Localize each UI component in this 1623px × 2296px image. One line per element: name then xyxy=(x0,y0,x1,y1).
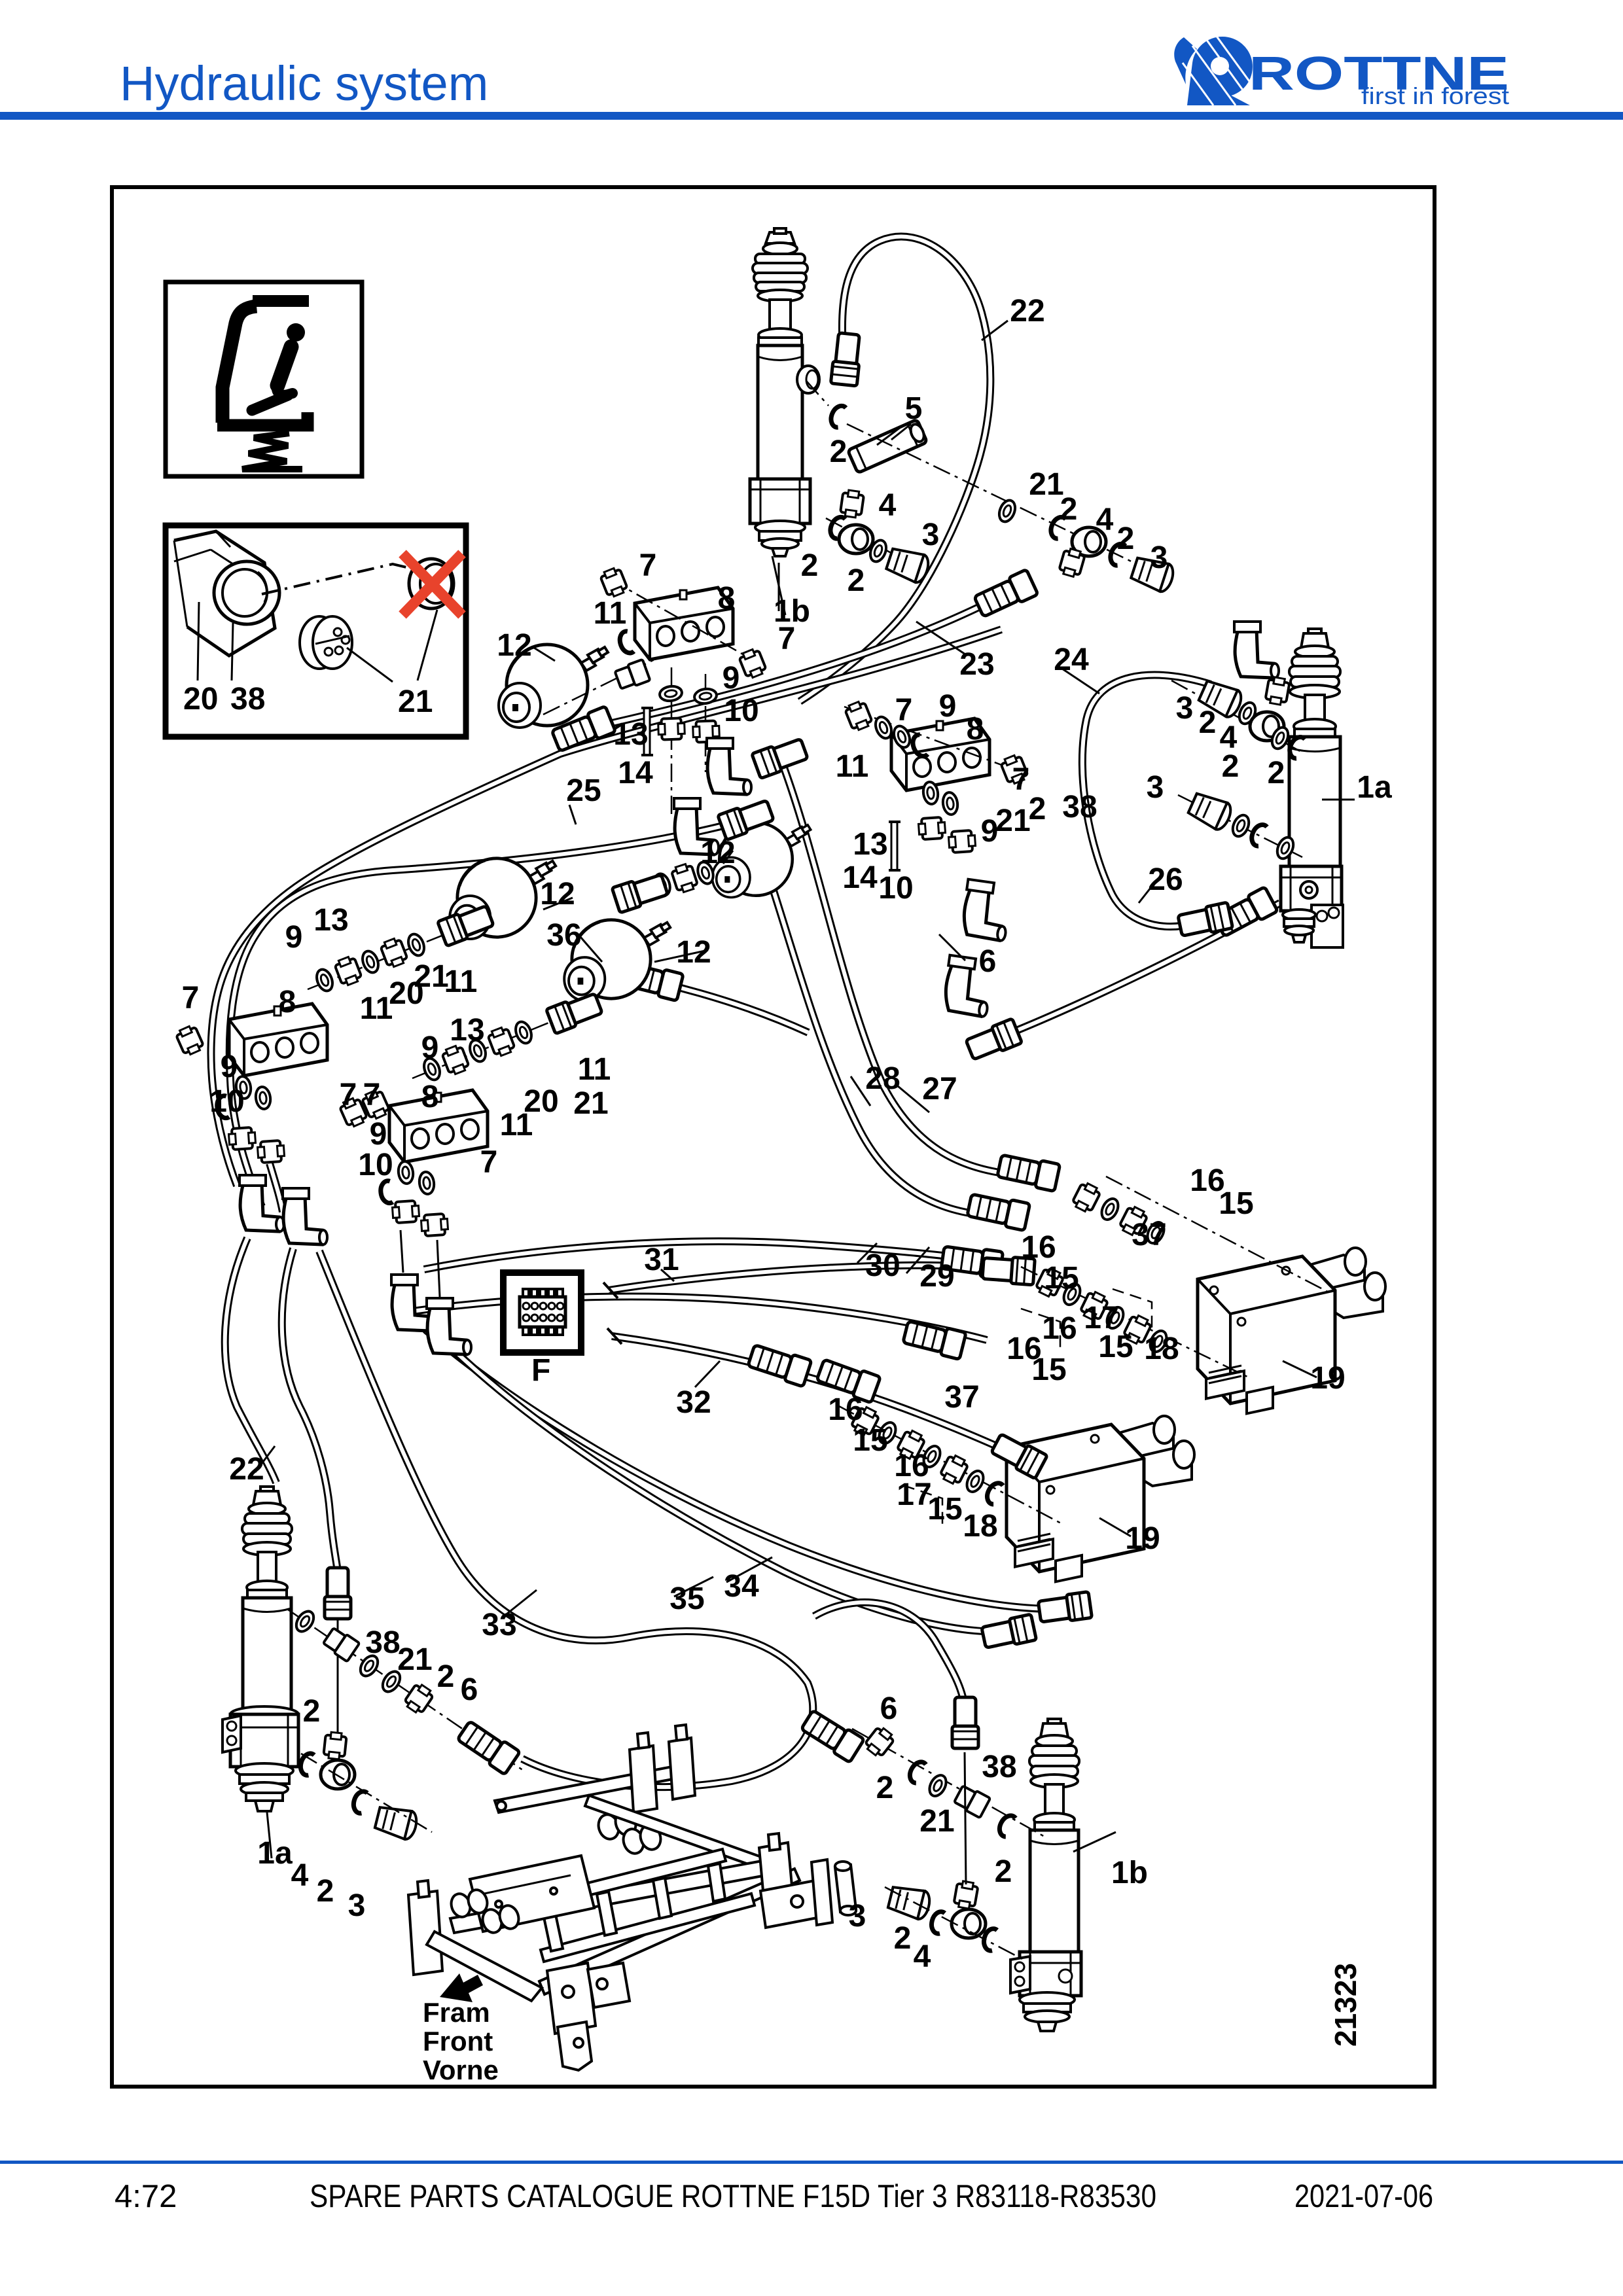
svg-text:23: 23 xyxy=(959,647,994,682)
svg-text:2: 2 xyxy=(876,1771,894,1805)
svg-text:2: 2 xyxy=(847,563,865,598)
svg-text:7: 7 xyxy=(895,693,913,728)
svg-text:2021-07-06: 2021-07-06 xyxy=(1294,2179,1433,2214)
svg-text:2: 2 xyxy=(1268,756,1285,790)
svg-text:14: 14 xyxy=(618,756,653,790)
svg-text:3: 3 xyxy=(348,1888,366,1923)
svg-text:15: 15 xyxy=(1031,1352,1066,1387)
svg-text:2: 2 xyxy=(801,548,819,583)
svg-text:20: 20 xyxy=(389,976,423,1011)
svg-text:27: 27 xyxy=(922,1072,957,1106)
svg-text:9: 9 xyxy=(421,1031,439,1065)
svg-text:31: 31 xyxy=(644,1243,679,1277)
svg-text:38: 38 xyxy=(1062,790,1097,824)
svg-text:2: 2 xyxy=(1117,521,1135,556)
svg-text:9: 9 xyxy=(370,1117,387,1152)
svg-text:5: 5 xyxy=(905,391,923,426)
svg-text:36: 36 xyxy=(546,918,581,953)
svg-text:7: 7 xyxy=(182,981,200,1016)
svg-text:16: 16 xyxy=(1021,1230,1056,1265)
svg-text:21: 21 xyxy=(398,684,433,719)
svg-text:11: 11 xyxy=(500,1108,533,1142)
svg-text:25: 25 xyxy=(566,773,601,808)
svg-text:4:72: 4:72 xyxy=(115,2179,177,2214)
svg-text:21: 21 xyxy=(919,1804,954,1839)
svg-text:3: 3 xyxy=(922,518,940,552)
svg-text:8: 8 xyxy=(421,1080,439,1114)
svg-text:14: 14 xyxy=(842,860,878,895)
svg-text:16: 16 xyxy=(828,1392,863,1427)
svg-text:2: 2 xyxy=(1029,792,1046,826)
svg-text:3: 3 xyxy=(1176,691,1194,726)
svg-text:2: 2 xyxy=(317,1874,334,1909)
svg-text:33: 33 xyxy=(482,1608,516,1642)
svg-text:21323: 21323 xyxy=(1329,1963,1363,2047)
svg-text:7: 7 xyxy=(480,1145,498,1180)
svg-text:11: 11 xyxy=(836,749,869,784)
svg-text:2: 2 xyxy=(995,1854,1012,1889)
svg-text:10: 10 xyxy=(358,1148,393,1182)
svg-text:15: 15 xyxy=(927,1492,962,1527)
svg-text:24: 24 xyxy=(1054,643,1089,677)
svg-text:12: 12 xyxy=(676,935,711,970)
svg-text:1a: 1a xyxy=(1357,770,1392,805)
svg-text:4: 4 xyxy=(914,1939,931,1974)
svg-text:26: 26 xyxy=(1148,862,1183,897)
svg-text:4: 4 xyxy=(879,488,897,523)
svg-text:7: 7 xyxy=(639,548,657,583)
svg-text:21: 21 xyxy=(995,804,1030,838)
svg-text:1b: 1b xyxy=(1111,1856,1148,1890)
svg-text:12: 12 xyxy=(497,628,531,663)
svg-text:10: 10 xyxy=(878,871,913,906)
svg-text:19: 19 xyxy=(1125,1521,1160,1556)
svg-text:20: 20 xyxy=(183,682,218,716)
svg-text:29: 29 xyxy=(919,1259,954,1294)
svg-text:Front: Front xyxy=(423,2026,493,2057)
svg-text:13: 13 xyxy=(313,903,348,938)
svg-text:7: 7 xyxy=(363,1078,381,1112)
svg-text:4: 4 xyxy=(291,1858,309,1893)
svg-text:10: 10 xyxy=(724,694,758,728)
svg-text:2: 2 xyxy=(1199,705,1217,740)
svg-text:28: 28 xyxy=(865,1061,900,1096)
svg-text:7: 7 xyxy=(1012,762,1030,797)
svg-text:8: 8 xyxy=(718,581,736,616)
svg-text:6: 6 xyxy=(979,944,997,979)
svg-text:Vorne: Vorne xyxy=(423,2055,499,2085)
svg-text:12: 12 xyxy=(540,877,575,911)
svg-text:6: 6 xyxy=(461,1672,478,1707)
svg-text:F: F xyxy=(531,1353,550,1388)
svg-text:11: 11 xyxy=(360,991,393,1026)
svg-text:12: 12 xyxy=(700,836,735,870)
svg-text:2: 2 xyxy=(437,1659,455,1694)
svg-text:13: 13 xyxy=(853,827,887,862)
svg-text:3: 3 xyxy=(1147,770,1164,805)
svg-text:37: 37 xyxy=(944,1380,979,1415)
svg-text:30: 30 xyxy=(865,1248,900,1283)
svg-text:2: 2 xyxy=(303,1694,321,1729)
svg-text:8: 8 xyxy=(967,712,984,747)
svg-text:3: 3 xyxy=(1150,540,1168,575)
svg-text:32: 32 xyxy=(676,1385,711,1420)
svg-text:38: 38 xyxy=(365,1625,400,1660)
svg-text:7: 7 xyxy=(340,1078,357,1112)
svg-text:21: 21 xyxy=(1029,467,1063,502)
svg-text:15: 15 xyxy=(1044,1261,1079,1296)
svg-text:11: 11 xyxy=(444,964,478,999)
svg-text:9: 9 xyxy=(221,1050,238,1084)
svg-text:37: 37 xyxy=(1132,1218,1166,1252)
svg-text:9: 9 xyxy=(981,814,999,849)
svg-text:1a: 1a xyxy=(257,1836,293,1871)
svg-text:2: 2 xyxy=(830,434,847,469)
svg-text:first in forest: first in forest xyxy=(1361,82,1509,109)
svg-text:6: 6 xyxy=(880,1691,898,1726)
svg-text:7: 7 xyxy=(778,622,796,656)
svg-text:SPARE PARTS CATALOGUE ROTTNE F: SPARE PARTS CATALOGUE ROTTNE F15D Tier 3… xyxy=(310,2179,1156,2214)
svg-text:11: 11 xyxy=(594,596,627,631)
svg-text:13: 13 xyxy=(450,1013,484,1048)
svg-text:4: 4 xyxy=(1096,503,1114,537)
svg-text:13: 13 xyxy=(613,717,648,752)
svg-text:22: 22 xyxy=(1010,294,1044,328)
svg-text:21: 21 xyxy=(397,1642,432,1677)
svg-text:38: 38 xyxy=(982,1750,1016,1784)
svg-text:Fram: Fram xyxy=(423,1997,490,2028)
svg-text:2: 2 xyxy=(1060,492,1078,527)
svg-text:15: 15 xyxy=(1219,1186,1253,1221)
svg-text:10: 10 xyxy=(209,1084,244,1119)
svg-text:15: 15 xyxy=(1098,1330,1133,1364)
svg-text:38: 38 xyxy=(230,682,265,716)
svg-text:18: 18 xyxy=(1144,1332,1179,1366)
svg-text:21: 21 xyxy=(573,1086,608,1121)
svg-text:9: 9 xyxy=(939,689,957,724)
svg-text:11: 11 xyxy=(578,1052,611,1087)
svg-text:Hydraulic system: Hydraulic system xyxy=(120,56,488,111)
svg-text:9: 9 xyxy=(285,920,303,955)
svg-text:3: 3 xyxy=(849,1899,866,1934)
svg-text:2: 2 xyxy=(894,1921,912,1956)
svg-text:16: 16 xyxy=(1042,1311,1077,1346)
svg-text:34: 34 xyxy=(724,1569,759,1604)
svg-text:18: 18 xyxy=(963,1509,997,1544)
svg-text:9: 9 xyxy=(722,661,740,696)
svg-text:8: 8 xyxy=(279,985,296,1019)
svg-text:19: 19 xyxy=(1310,1361,1345,1396)
svg-text:17: 17 xyxy=(897,1477,931,1512)
svg-text:15: 15 xyxy=(853,1423,887,1458)
svg-text:22: 22 xyxy=(229,1452,264,1487)
svg-text:35: 35 xyxy=(669,1581,704,1616)
svg-text:2: 2 xyxy=(1222,749,1240,784)
